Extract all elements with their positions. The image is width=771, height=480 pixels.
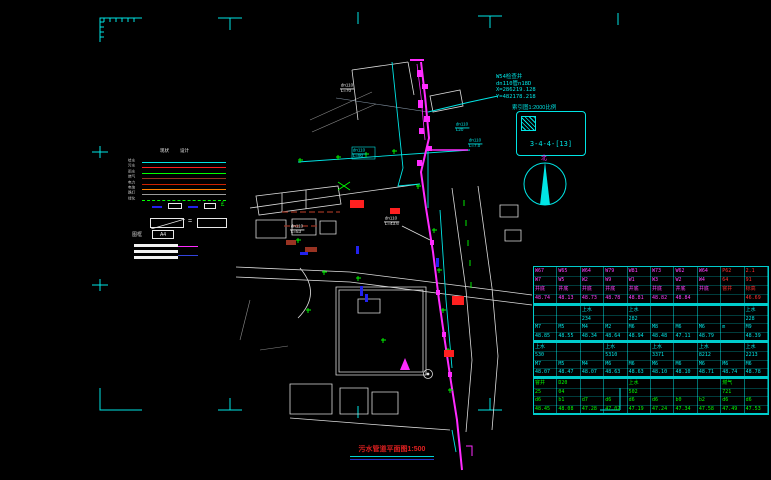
pipe-label: dn110L=7.0 [468, 139, 482, 149]
table-cell: 48.85 [534, 332, 557, 342]
title-underline-2 [350, 459, 434, 460]
pipe-label: dn110L20 [455, 123, 469, 133]
coord-note-line: X=286219.128 [496, 87, 536, 94]
index-box-caption: 索引图1:2000比例 [512, 103, 556, 111]
pipe-label: dn110L=43.6 [384, 217, 400, 227]
legend-road-box [150, 218, 184, 228]
legend-row-line [142, 200, 226, 201]
legend-box-symbol-2 [204, 203, 216, 209]
label-leader-line [336, 98, 428, 112]
table-cell: 48.81 [628, 294, 651, 304]
table-cell: 48.78 [604, 294, 627, 304]
table-cell: 48.13 [557, 294, 580, 304]
table-cell: 48.07 [581, 368, 604, 377]
table-cell: 48.10 [674, 368, 697, 377]
legend-frame-size: A4 [152, 230, 174, 239]
sheet-title: 污水管道平面图1:500 [350, 444, 434, 454]
legend-rows: 给水污水雨水燃气电力电信路灯绿化 [128, 160, 228, 203]
table-row: 48.0748.4748.0748.6348.6348.1048.1048.71… [534, 368, 768, 376]
legend-box-symbol [168, 203, 182, 209]
table-row: 48.4548.0847.2847.0247.1947.2447.3447.58… [534, 405, 768, 414]
table-cell: 47.11 [674, 332, 697, 342]
table-cell: 47.19 [628, 405, 651, 415]
table-cell: 48.84 [674, 294, 697, 304]
table-cell [721, 332, 744, 342]
table-cell: 48.73 [581, 294, 604, 304]
scale-bar-2 [134, 250, 178, 253]
legend-row-label: 绿化 [128, 197, 135, 201]
table-cell: 47.34 [674, 405, 697, 415]
legend-tree-glyph: £ [221, 202, 224, 208]
table-cell: 48.55 [557, 332, 580, 342]
legend-row-line [142, 184, 226, 185]
legend-row-label: 污水 [128, 164, 135, 168]
table-cell: 48.78 [745, 368, 768, 377]
legend-row-label: 电力 [128, 181, 135, 185]
legend-magenta-line [178, 246, 198, 247]
utility-table: W67W65W64W79W81W73W62W64P622.1W7W5W2W9W1… [533, 266, 769, 415]
table-cell: 47.02 [604, 405, 627, 415]
index-hatch-square [521, 116, 536, 131]
table-cell: 48.48 [651, 332, 674, 342]
legend-row-line [142, 194, 226, 195]
table-cell: 48.10 [651, 368, 674, 377]
scale-bar-1 [134, 244, 178, 247]
north-label: 北 [541, 153, 547, 162]
legend-equals-glyph: = [188, 218, 192, 225]
table-row: 234282228 [534, 315, 768, 324]
table-cell: 48.74 [534, 294, 557, 304]
index-sheet-number: 3-4-4-[13] [517, 140, 585, 148]
table-cell: 48.82 [651, 294, 674, 304]
table-row: d6b1d7d6d6d6b0b2d6d6 [534, 396, 768, 405]
table-row: 井底井底井底井底井底井底井底井底窨井标高 [534, 285, 768, 294]
legend-frame-label: 图框 [132, 231, 142, 238]
table-cell: 48.47 [557, 368, 580, 377]
table-cell: 48.74 [721, 368, 744, 377]
legend-row-label: 给水 [128, 159, 135, 163]
table-row: 上水上水上水 [534, 306, 768, 315]
table-cell: 47.58 [698, 405, 721, 415]
table-row: W67W65W64W79W81W73W62W64P622.1 [534, 267, 768, 276]
table-row: M7M5M4M2M6M8M6M6mM9 [534, 323, 768, 332]
table-cell: 47.24 [651, 405, 674, 415]
pipe-label: dn110L=70 [340, 84, 354, 94]
north-arrow [524, 162, 566, 205]
table-group: 上水上水上水234282228M7M5M4M2M6M8M6M6mM948.854… [533, 305, 769, 342]
legend-road-box-2 [197, 218, 227, 228]
table-group: 窨井D20上水燃气2504502721d6b1d7d6d6d6b0b2d6d64… [533, 378, 769, 415]
scale-bar-3 [134, 256, 178, 259]
table-cell: 46.69 [745, 294, 768, 304]
index-box: 3-4-4-[13] [516, 111, 586, 156]
coord-note-line: Y=482178.218 [496, 94, 536, 101]
coord-note: W54检查井dn110管n18DX=286219.128Y=482178.218 [496, 74, 536, 100]
table-row: 窨井D20上水燃气 [534, 379, 768, 388]
table-cell [721, 294, 744, 304]
legend-header-existing: 现状 [160, 148, 169, 154]
table-row: 上水上水上水上水上水 [534, 343, 768, 351]
legend-blue-line [178, 255, 198, 256]
table-row: 48.7448.1348.7348.7848.8148.8248.8446.69 [534, 294, 768, 303]
table-cell: 48.63 [604, 368, 627, 377]
table-cell: 48.64 [604, 332, 627, 342]
table-cell: 48.45 [534, 405, 557, 415]
title-underline-1 [350, 456, 434, 457]
table-cell: 48.63 [628, 368, 651, 377]
legend-row-label: 路灯 [128, 191, 135, 195]
legend-row-line [142, 162, 226, 163]
table-cell: 47.49 [721, 405, 744, 415]
legend-row-line [142, 173, 226, 174]
table-row: 5305310337182122213 [534, 351, 768, 359]
legend-row-line [142, 178, 226, 179]
legend-row-label: 雨水 [128, 170, 135, 174]
table-cell: 47.28 [581, 405, 604, 415]
table-row: W7W5W2W9W1W3W2W46491 [534, 276, 768, 285]
legend-cable-symbol [152, 206, 162, 208]
legend-row-line [142, 167, 226, 168]
table-row: M7M5M4M6M6M6M6M6M6M6 [534, 360, 768, 368]
pipe-label: dn110L=90 [352, 149, 366, 159]
table-cell [698, 294, 721, 304]
pipe-label: dn110L=53 [290, 225, 304, 235]
table-group: W67W65W64W79W81W73W62W64P622.1W7W5W2W9W1… [533, 266, 769, 305]
table-cell: 47.53 [745, 405, 768, 415]
cable-segments [300, 246, 439, 302]
table-cell: 48.34 [581, 332, 604, 342]
table-cell: 48.79 [698, 332, 721, 342]
table-cell: 48.94 [628, 332, 651, 342]
flow-arrow [400, 358, 410, 370]
legend-header-design: 设计 [180, 148, 189, 154]
legend-row-label: 电信 [128, 186, 135, 190]
legend-row-line [142, 189, 226, 190]
legend-row-label: 燃气 [128, 175, 135, 179]
building-outlines [236, 62, 532, 432]
table-cell: 48.07 [534, 368, 557, 377]
table-group: 上水上水上水上水上水5305310337182122213M7M5M4M6M6M… [533, 342, 769, 378]
manhole-blobs [417, 70, 452, 377]
demolition-blocks [350, 200, 464, 357]
table-row: 2504502721 [534, 388, 768, 397]
table-cell: 48.39 [745, 332, 768, 342]
table-cell: 48.08 [557, 405, 580, 415]
cad-drawing-canvas: 现状 设计 给水污水雨水燃气电力电信路灯绿化 £ = 图框 A4 W54检查井d… [0, 0, 771, 480]
legend-cable-symbol-2 [188, 206, 198, 208]
table-row: 48.8548.5548.3448.6448.9448.4847.1148.79… [534, 332, 768, 341]
table-cell: 48.71 [698, 368, 721, 377]
